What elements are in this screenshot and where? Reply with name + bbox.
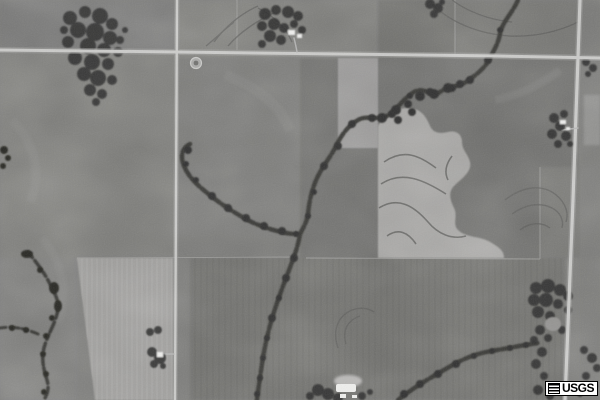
- usgs-watermark-text: USGS: [562, 382, 594, 395]
- usgs-wave-logo-icon: [548, 383, 560, 394]
- aerial-photo-viewport: USGS: [0, 0, 600, 400]
- film-grain-overlay: [0, 0, 600, 400]
- aerial-photo: [0, 0, 600, 400]
- usgs-watermark: USGS: [545, 381, 598, 396]
